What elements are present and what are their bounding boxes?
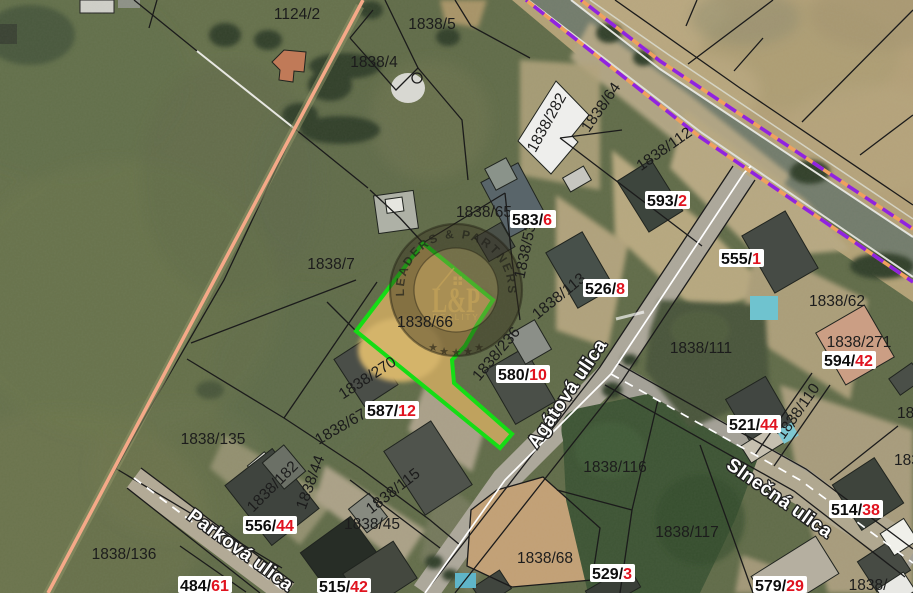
svg-text:1838/271: 1838/271 — [827, 334, 892, 351]
svg-text:593/2: 593/2 — [647, 193, 687, 210]
svg-text:★: ★ — [463, 346, 473, 358]
svg-text:★: ★ — [439, 346, 449, 358]
svg-text:1838/135: 1838/135 — [181, 431, 246, 448]
svg-text:556/44: 556/44 — [245, 518, 294, 535]
svg-text:594/42: 594/42 — [824, 353, 873, 370]
svg-text:1838/7: 1838/7 — [307, 256, 354, 273]
svg-text:579/29: 579/29 — [755, 578, 804, 593]
svg-text:555/1: 555/1 — [721, 251, 761, 268]
svg-text:583/6: 583/6 — [512, 212, 552, 229]
svg-text:1838/136: 1838/136 — [92, 546, 157, 563]
svg-text:515/42: 515/42 — [319, 579, 368, 593]
svg-text:580/10: 580/10 — [498, 367, 547, 384]
svg-text:1838/116: 1838/116 — [583, 459, 647, 476]
svg-text:★: ★ — [474, 342, 484, 354]
svg-text:1838/111: 1838/111 — [670, 340, 732, 357]
svg-text:1838/65: 1838/65 — [456, 204, 512, 221]
svg-text:1838/4: 1838/4 — [350, 54, 398, 71]
svg-text:1838/68: 1838/68 — [517, 550, 573, 567]
svg-text:521/44: 521/44 — [729, 417, 778, 434]
svg-text:183: 183 — [894, 452, 913, 469]
svg-text:1838/66: 1838/66 — [397, 314, 453, 331]
svg-text:1838/: 1838/ — [849, 577, 888, 593]
svg-text:★: ★ — [451, 347, 461, 359]
svg-text:1838/45: 1838/45 — [344, 516, 400, 533]
svg-text:529/3: 529/3 — [592, 566, 632, 583]
svg-text:587/12: 587/12 — [367, 403, 416, 420]
svg-text:484/61: 484/61 — [180, 578, 229, 593]
svg-text:1838/117: 1838/117 — [655, 524, 719, 541]
svg-text:★: ★ — [428, 342, 438, 354]
svg-text:1838/5: 1838/5 — [408, 16, 455, 33]
svg-text:1124/2: 1124/2 — [274, 6, 320, 23]
svg-text:1838/62: 1838/62 — [809, 293, 865, 310]
svg-text:514/38: 514/38 — [831, 502, 880, 519]
svg-text:18: 18 — [897, 405, 913, 422]
svg-text:526/8: 526/8 — [585, 281, 625, 298]
